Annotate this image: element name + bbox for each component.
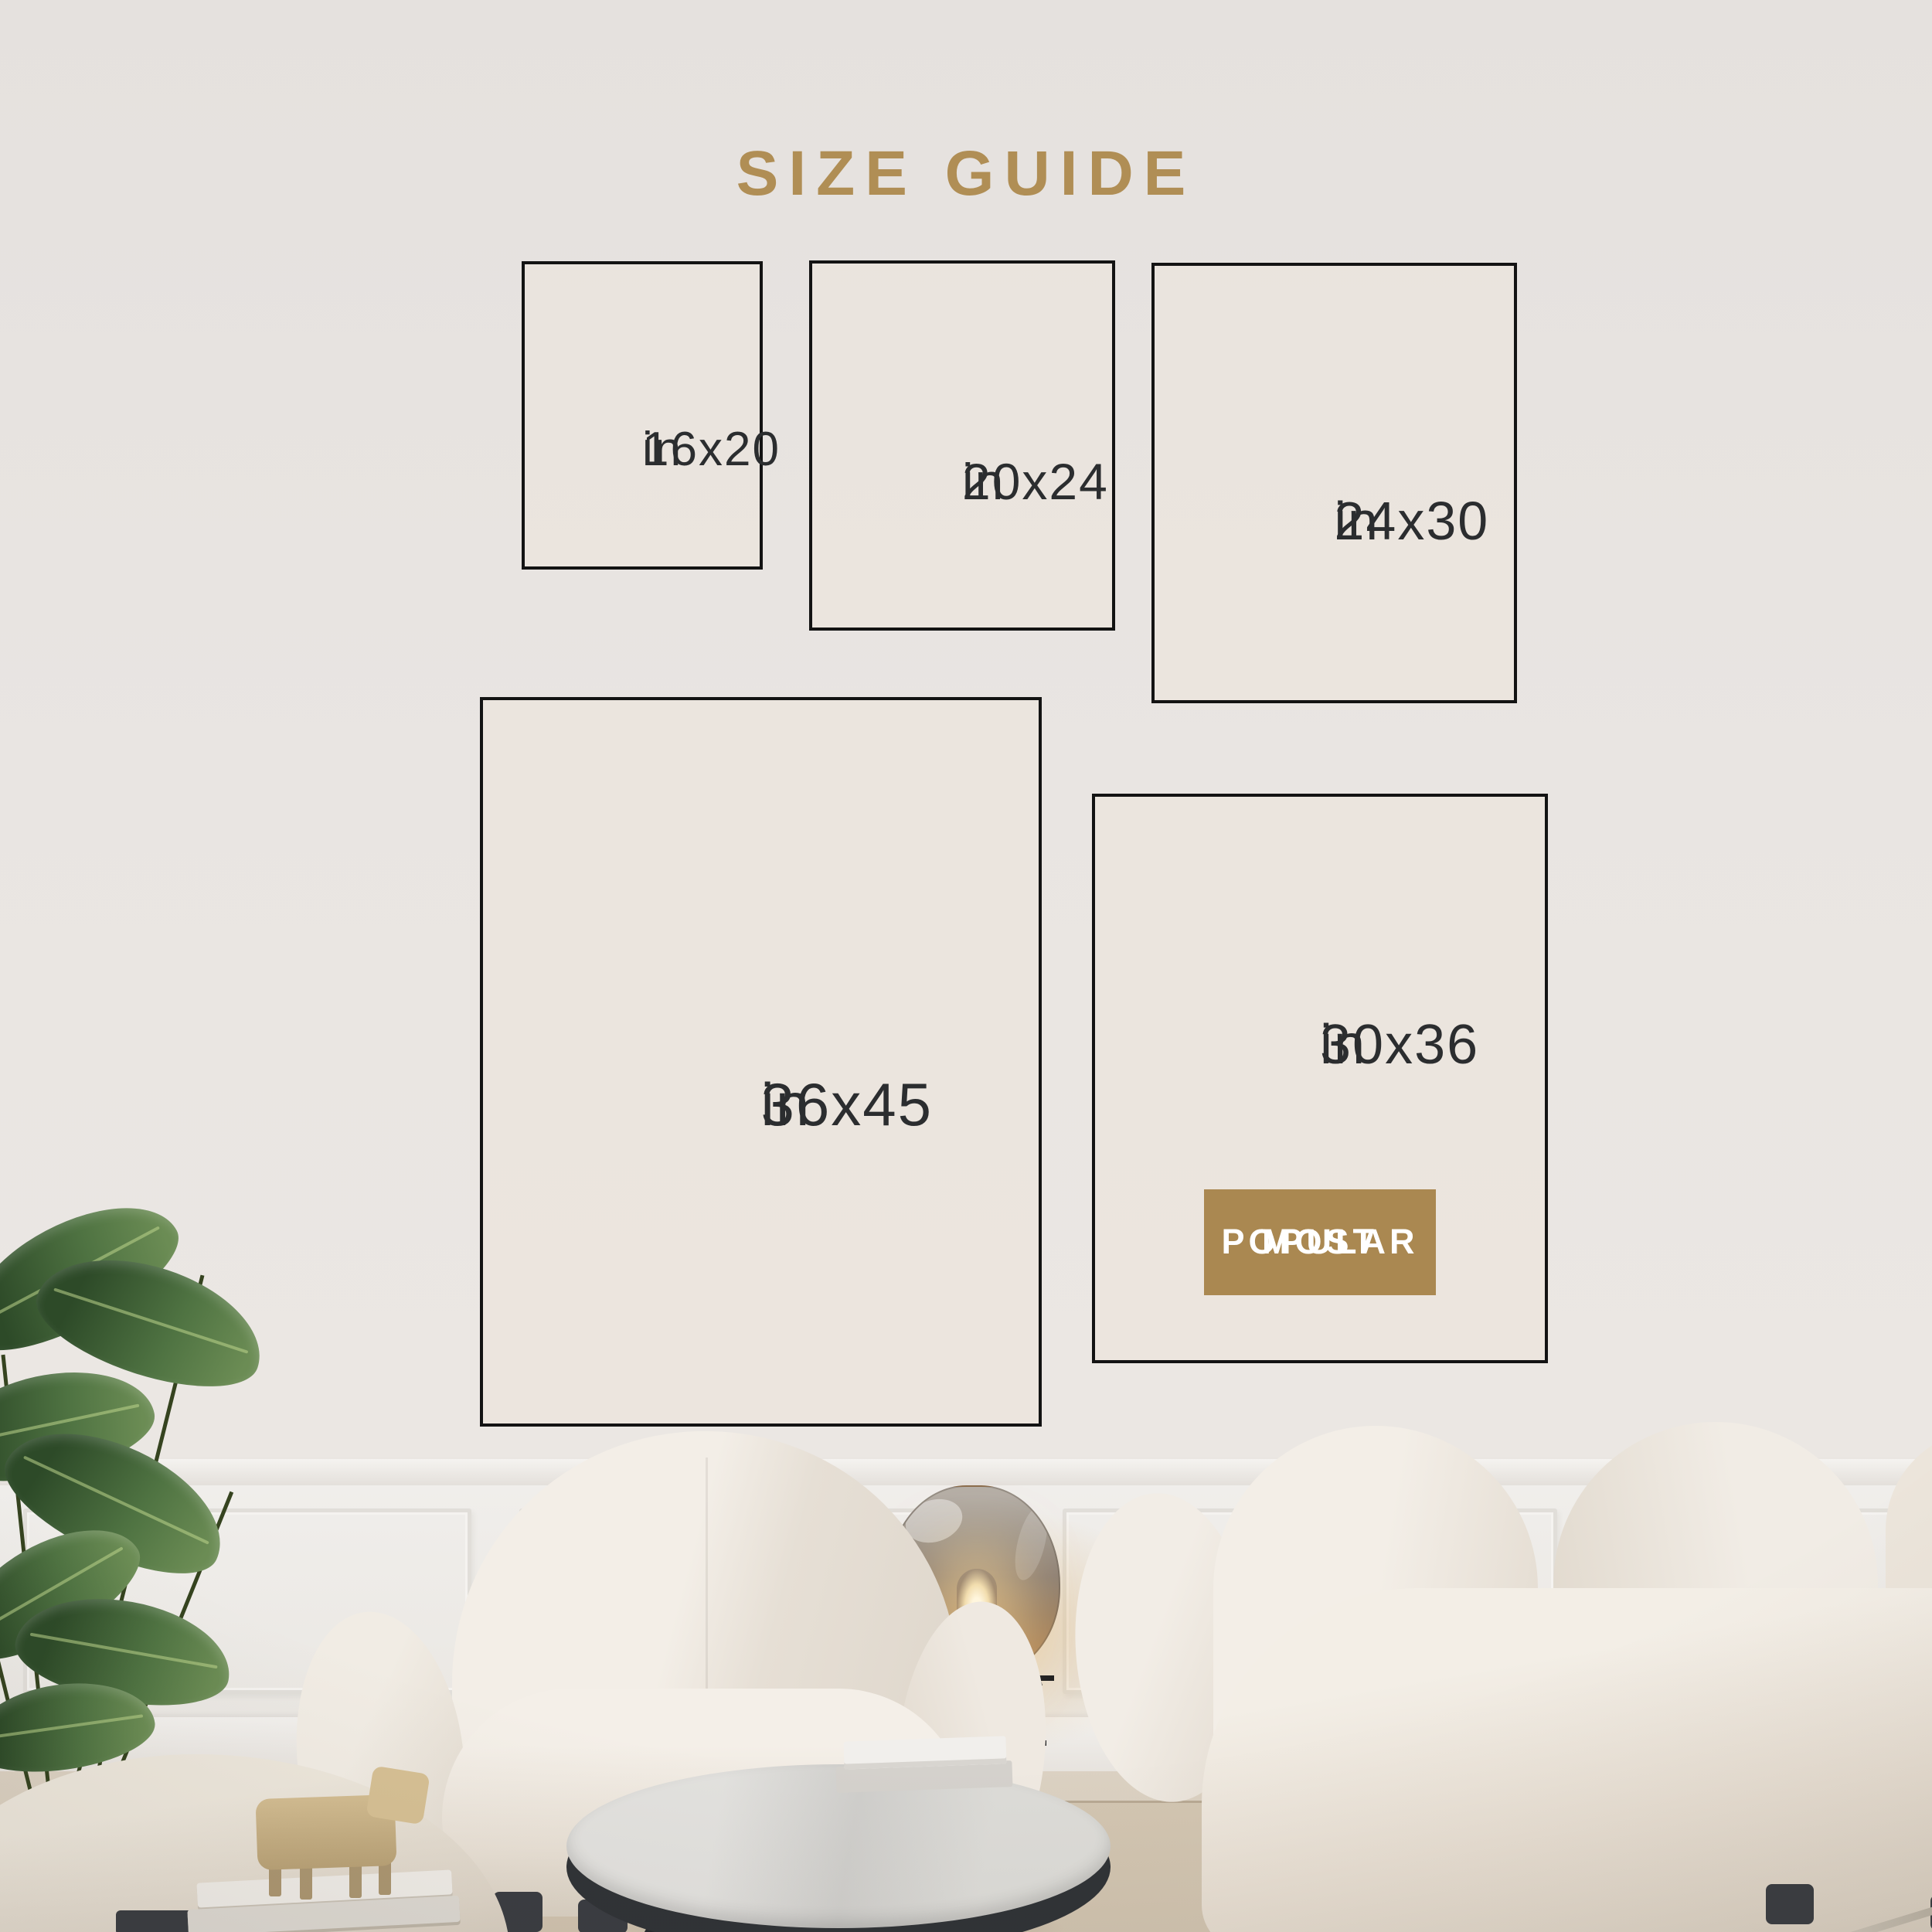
size-unit: in (962, 446, 1005, 519)
sofa-leg (1766, 1884, 1814, 1924)
size-unit: in (1320, 1005, 1366, 1084)
wooden-toy-leg (349, 1862, 362, 1898)
size-unit: in (642, 416, 682, 484)
size-unit: in (1335, 483, 1379, 560)
wooden-toy-head (366, 1766, 430, 1825)
book-on-table (843, 1736, 1006, 1769)
badge-line: POPULAR (1221, 1220, 1418, 1264)
wooden-toy-leg (300, 1864, 312, 1900)
size-box-16x20: 16x20 in (522, 261, 763, 570)
size-guide-mockup: SIZE GUIDE 16x20 in 20x24 in 24x30 in 36… (0, 0, 1932, 1932)
size-box-24x30: 24x30 in (1151, 263, 1517, 703)
size-guide-title: SIZE GUIDE (736, 138, 1196, 210)
size-box-20x24: 20x24 in (809, 260, 1115, 631)
size-box-36x45: 36x45 in (480, 697, 1042, 1427)
size-unit: in (761, 1062, 811, 1148)
sofa-seat (1202, 1588, 1932, 1932)
size-box-30x36: 30x36 in MOST POPULAR (1092, 794, 1548, 1363)
most-popular-badge: MOST POPULAR (1204, 1189, 1436, 1295)
